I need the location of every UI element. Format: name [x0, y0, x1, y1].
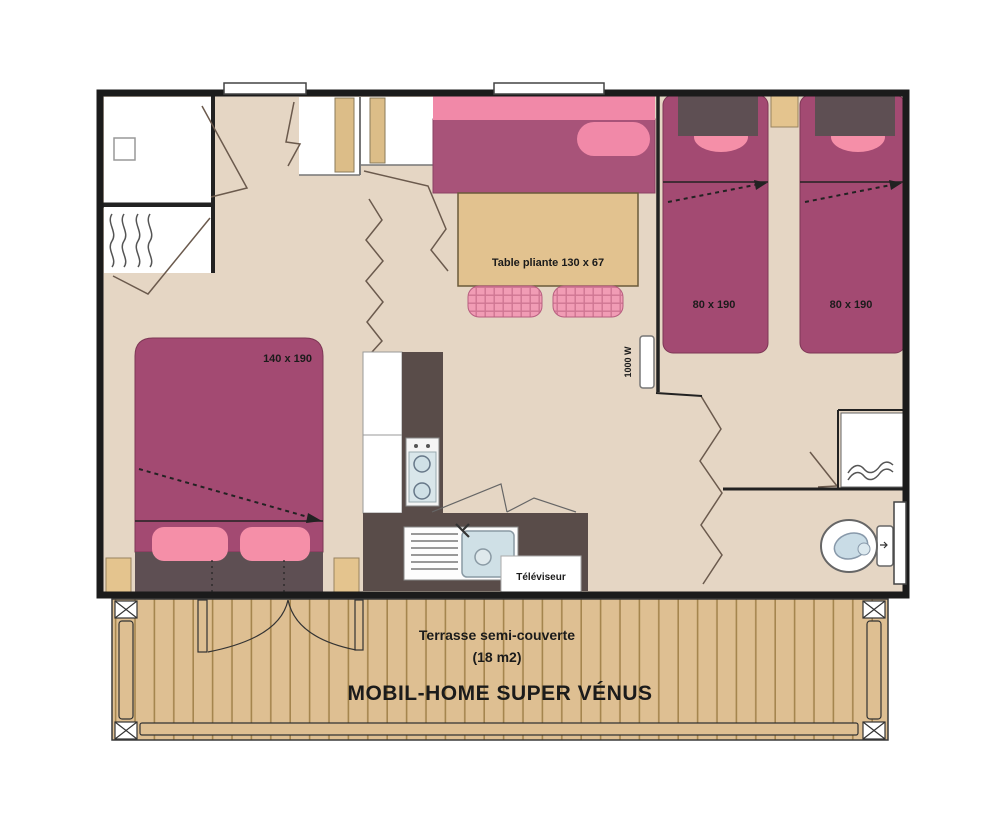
master-bed-label: 140 x 190	[263, 353, 312, 365]
master-bed: 140 x 190	[106, 338, 359, 593]
burner	[414, 483, 430, 499]
terrace-deck	[112, 599, 888, 740]
fridge-cupboard	[363, 352, 402, 513]
cistern	[877, 526, 893, 566]
tv-label: Téléviseur	[516, 572, 566, 583]
wardrobe	[370, 98, 385, 163]
wall-heater	[640, 336, 654, 388]
headboard	[815, 95, 895, 136]
sofa-cushion	[577, 122, 650, 156]
stool	[553, 286, 623, 317]
floor-plan-svg: Table pliante 130 x 67 140 x 190	[0, 0, 1000, 839]
single-bed-left-label: 80 x 190	[693, 299, 736, 311]
heater-label: 1000 W	[623, 346, 633, 378]
folding-table	[458, 193, 638, 286]
window	[494, 83, 604, 94]
nightstand	[771, 96, 798, 127]
wardrobe	[335, 98, 354, 172]
terrace-rail-left	[119, 621, 133, 719]
mobile-home: Table pliante 130 x 67 140 x 190	[100, 83, 906, 595]
toilet	[821, 520, 893, 572]
terrace-subtitle1: Terrasse semi-couverte	[419, 627, 575, 643]
burner	[414, 456, 430, 472]
pillow	[152, 527, 228, 561]
storage-room	[100, 95, 213, 273]
nightstand	[334, 558, 359, 593]
single-bed-left: 80 x 190	[663, 95, 768, 353]
stool	[468, 286, 542, 317]
single-bed-right-label: 80 x 190	[830, 299, 873, 311]
pillow	[240, 527, 310, 561]
window	[224, 83, 306, 94]
terrace-rail-right	[867, 621, 881, 719]
sofa	[433, 95, 655, 193]
headboard	[678, 95, 758, 136]
wardrobe-nook	[299, 97, 434, 175]
window	[894, 502, 906, 584]
table-label: Table pliante 130 x 67	[492, 257, 604, 269]
terrace: Terrasse semi-couverte (18 m2) MOBIL-HOM…	[112, 599, 888, 740]
nightstand	[106, 558, 131, 593]
floor-plan-page: Table pliante 130 x 67 140 x 190	[0, 0, 1000, 839]
single-bed-right: 80 x 190	[800, 95, 905, 353]
plan-title: MOBIL-HOME SUPER VÉNUS	[347, 682, 652, 705]
terrace-rail-bottom	[140, 723, 858, 735]
terrace-subtitle2: (18 m2)	[472, 649, 521, 665]
